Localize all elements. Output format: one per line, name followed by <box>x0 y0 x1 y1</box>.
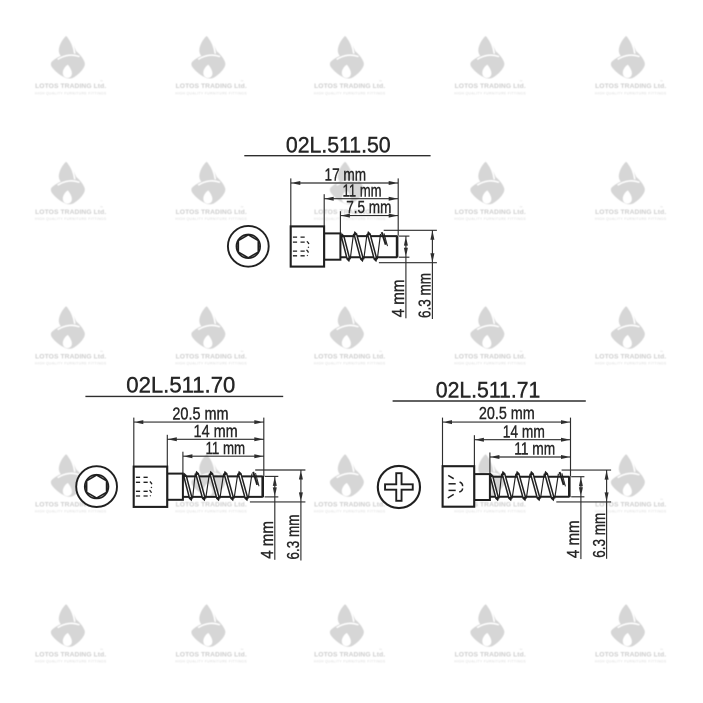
svg-text:7.5 mm: 7.5 mm <box>346 197 391 217</box>
svg-text:6.3 mm: 6.3 mm <box>589 513 609 558</box>
svg-text:6.3 mm: 6.3 mm <box>415 273 435 318</box>
svg-text:20.5 mm: 20.5 mm <box>479 403 535 423</box>
svg-text:02L.511.71: 02L.511.71 <box>436 377 541 402</box>
svg-text:11 mm: 11 mm <box>205 438 245 458</box>
svg-text:11 mm: 11 mm <box>514 439 555 459</box>
svg-text:02L.511.70: 02L.511.70 <box>126 373 235 398</box>
svg-text:4 mm: 4 mm <box>563 520 583 558</box>
svg-text:02L.511.50: 02L.511.50 <box>286 132 391 157</box>
svg-text:4 mm: 4 mm <box>257 521 277 559</box>
svg-text:4 mm: 4 mm <box>388 280 408 318</box>
svg-text:6.3 mm: 6.3 mm <box>283 515 303 560</box>
